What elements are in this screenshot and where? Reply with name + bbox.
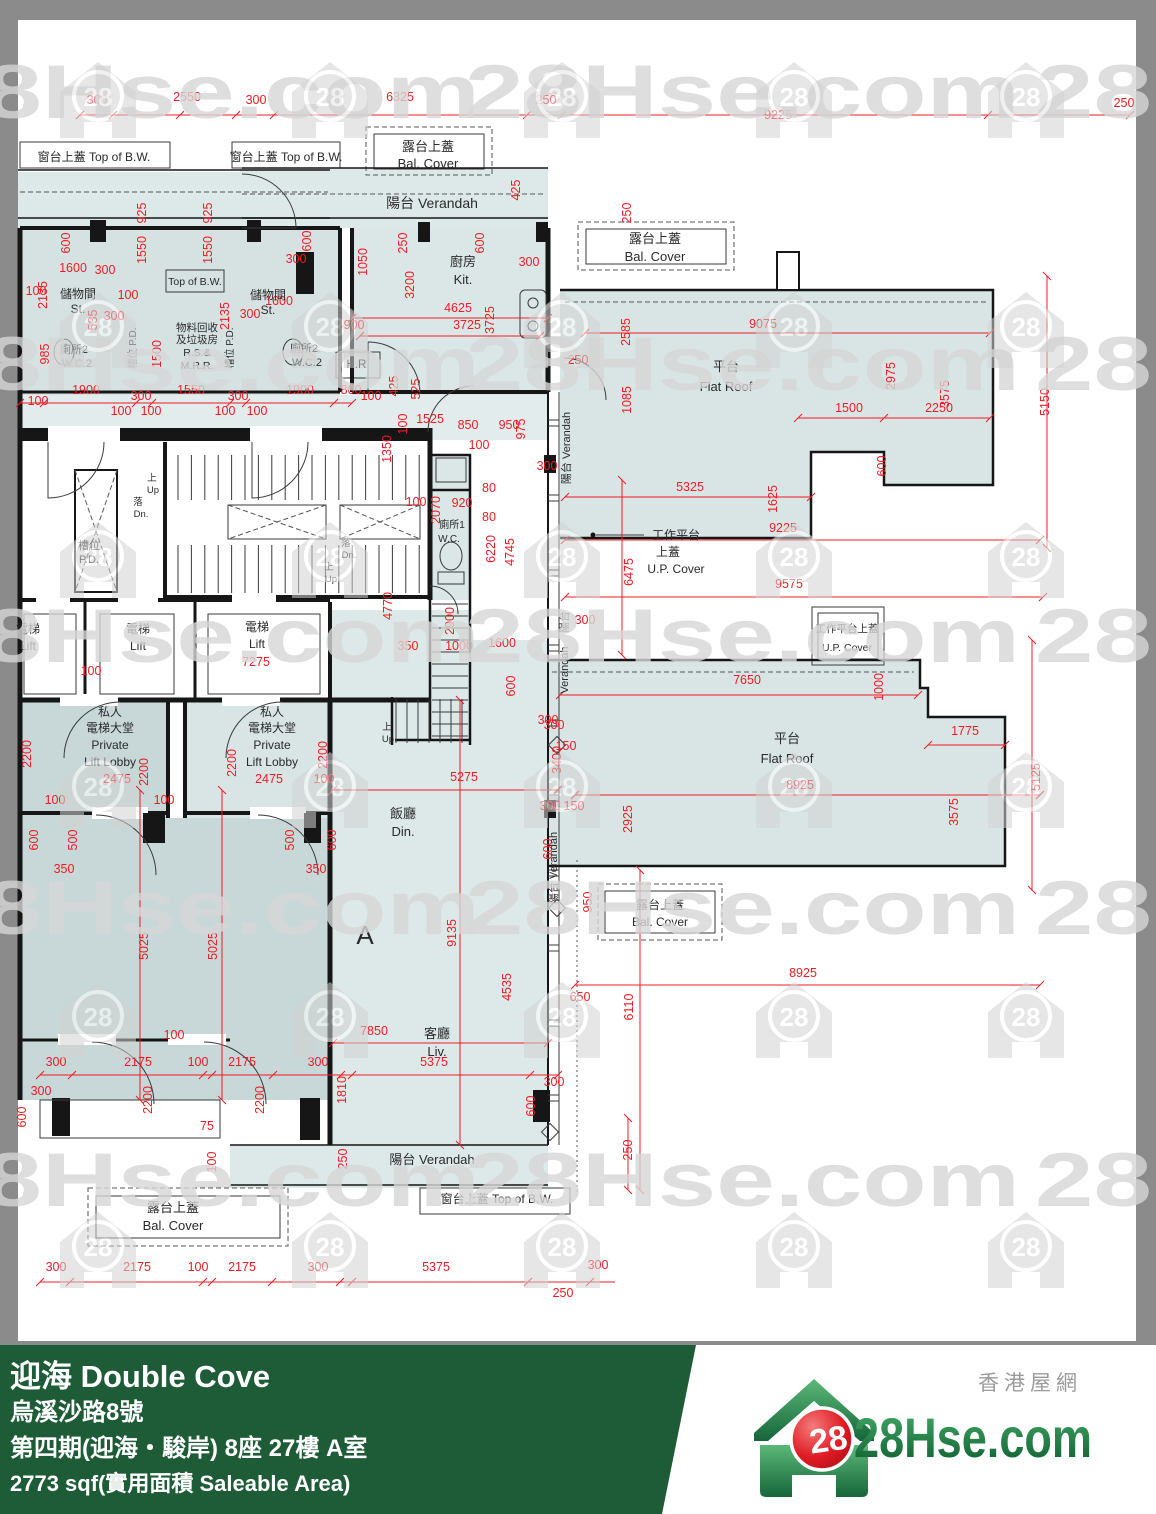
svg-text:2175: 2175 [228, 1055, 256, 1069]
logo-site-name-cn: 香港屋網 [978, 1372, 1082, 1395]
svg-text:28Hse.com: 28Hse.com [465, 594, 1020, 679]
svg-text:600: 600 [59, 233, 73, 254]
svg-text:100: 100 [406, 495, 427, 509]
svg-text:500: 500 [66, 830, 80, 851]
svg-text:平台: 平台 [774, 731, 800, 746]
svg-text:1625: 1625 [766, 485, 780, 513]
svg-text:2475: 2475 [255, 772, 283, 786]
svg-text:28: 28 [316, 1232, 345, 1262]
svg-text:300: 300 [544, 1075, 565, 1089]
svg-text:1350: 1350 [380, 435, 394, 463]
svg-text:28: 28 [316, 82, 345, 112]
svg-text:300: 300 [31, 1084, 52, 1098]
estate-title: 迎海 Double Cove [10, 1351, 270, 1396]
svg-text:上: 上 [147, 473, 157, 484]
svg-text:975: 975 [514, 419, 528, 440]
svg-text:2200: 2200 [141, 1086, 155, 1114]
svg-text:28Hse.com: 28Hse.com [0, 1138, 480, 1223]
svg-text:600: 600 [300, 231, 314, 252]
svg-text:250: 250 [620, 203, 634, 224]
svg-text:2200: 2200 [253, 1086, 267, 1114]
svg-text:100: 100 [188, 1055, 209, 1069]
svg-text:28: 28 [84, 772, 113, 802]
svg-text:28: 28 [84, 1002, 113, 1032]
svg-text:250: 250 [553, 1286, 574, 1300]
logo-site-name: 28Hse.com [854, 1406, 1092, 1469]
svg-text:2200: 2200 [20, 740, 34, 768]
svg-text:4535: 4535 [500, 973, 514, 1001]
svg-text:100: 100 [469, 438, 490, 452]
svg-text:600: 600 [875, 456, 889, 477]
svg-text:80: 80 [482, 510, 496, 524]
svg-text:100: 100 [118, 288, 139, 302]
svg-text:425: 425 [509, 180, 523, 201]
svg-text:28: 28 [548, 1232, 577, 1262]
svg-text:飯廳: 飯廳 [390, 806, 416, 821]
svg-text:100: 100 [164, 1028, 185, 1042]
svg-text:3575: 3575 [947, 798, 961, 826]
svg-text:Bal. Cover: Bal. Cover [625, 249, 686, 264]
logo-badge-number: 28 [807, 1419, 850, 1462]
svg-text:28: 28 [1012, 312, 1041, 342]
svg-text:2200: 2200 [137, 758, 151, 786]
svg-text:300: 300 [544, 718, 565, 732]
svg-text:電梯大堂: 電梯大堂 [86, 721, 134, 735]
svg-text:Up: Up [147, 485, 159, 496]
svg-text:5275: 5275 [450, 770, 478, 784]
svg-text:300: 300 [95, 263, 116, 277]
svg-text:5325: 5325 [676, 480, 704, 494]
svg-text:28Hse.com: 28Hse.com [1035, 1138, 1156, 1223]
svg-text:28: 28 [548, 82, 577, 112]
svg-text:28Hse.com: 28Hse.com [0, 594, 480, 679]
svg-text:28: 28 [780, 1232, 809, 1262]
svg-text:28: 28 [780, 82, 809, 112]
svg-text:工作平台: 工作平台 [652, 527, 700, 542]
svg-text:窗台上蓋 Top of B.W.: 窗台上蓋 Top of B.W. [230, 149, 343, 164]
svg-text:28Hse.com: 28Hse.com [1035, 866, 1156, 951]
svg-text:100: 100 [188, 1260, 209, 1274]
svg-text:U.P. Cover: U.P. Cover [647, 562, 704, 576]
svg-text:客廳: 客廳 [424, 1026, 450, 1041]
estate-address: 烏溪沙路8號 [10, 1392, 143, 1427]
svg-text:1775: 1775 [951, 724, 979, 738]
svg-text:600: 600 [473, 233, 487, 254]
floor-plan-image: 3002550300632525092252509259254251550155… [0, 0, 1156, 1345]
svg-text:6110: 6110 [622, 994, 636, 1021]
svg-text:5375: 5375 [422, 1260, 450, 1274]
svg-text:28: 28 [1012, 542, 1041, 572]
svg-text:300: 300 [537, 459, 558, 473]
svg-text:1525: 1525 [416, 412, 444, 426]
svg-text:28: 28 [316, 542, 345, 572]
svg-text:上: 上 [382, 722, 392, 733]
svg-text:28: 28 [548, 312, 577, 342]
svg-text:100: 100 [26, 284, 47, 298]
svg-text:28: 28 [1012, 1232, 1041, 1262]
svg-text:28Hse.com: 28Hse.com [465, 1138, 1020, 1223]
svg-text:28: 28 [548, 772, 577, 802]
svg-text:4745: 4745 [503, 538, 517, 566]
svg-text:100: 100 [396, 414, 410, 435]
svg-text:電梯大堂: 電梯大堂 [248, 721, 296, 735]
svg-text:1550: 1550 [135, 236, 149, 264]
svg-text:露台上蓋: 露台上蓋 [402, 139, 454, 154]
svg-text:28: 28 [84, 312, 113, 342]
svg-text:Din.: Din. [391, 824, 414, 839]
svg-text:28: 28 [1012, 772, 1041, 802]
svg-text:儲物間: 儲物間 [250, 288, 286, 302]
svg-text:925: 925 [201, 203, 215, 224]
svg-text:300: 300 [519, 255, 540, 269]
svg-text:Liv.: Liv. [427, 1044, 446, 1059]
svg-text:28: 28 [548, 1002, 577, 1032]
svg-text:28: 28 [84, 542, 113, 572]
svg-text:28: 28 [1012, 82, 1041, 112]
svg-text:600: 600 [524, 1096, 538, 1117]
svg-text:露台上蓋: 露台上蓋 [629, 231, 681, 246]
svg-text:925: 925 [135, 203, 149, 224]
svg-text:28: 28 [548, 542, 577, 572]
svg-text:落: 落 [133, 496, 143, 508]
svg-text:St.: St. [261, 303, 276, 317]
svg-text:28Hse.com: 28Hse.com [0, 866, 480, 951]
svg-text:6475: 6475 [622, 558, 636, 586]
svg-text:Top of B.W.: Top of B.W. [168, 276, 222, 288]
svg-text:250: 250 [396, 233, 410, 254]
svg-text:28: 28 [84, 1232, 113, 1262]
svg-text:600: 600 [325, 830, 339, 851]
svg-text:28: 28 [780, 772, 809, 802]
svg-text:28: 28 [780, 542, 809, 572]
svg-text:28: 28 [316, 1002, 345, 1032]
svg-text:100: 100 [154, 793, 175, 807]
svg-text:陽台 Verandah: 陽台 Verandah [386, 195, 478, 211]
svg-text:Bal. Cover: Bal. Cover [398, 156, 459, 171]
svg-text:Dn.: Dn. [134, 509, 149, 520]
site-logo: 28 28Hse.com 香港屋網 [736, 1345, 1156, 1514]
svg-text:600: 600 [27, 830, 41, 851]
svg-text:28: 28 [780, 1002, 809, 1032]
svg-text:1600: 1600 [59, 261, 87, 275]
svg-text:500: 500 [283, 830, 297, 851]
unit-info: 第四期(迎海・駿岸) 8座 27樓 A室 [10, 1428, 367, 1463]
svg-text:Up: Up [382, 734, 394, 745]
svg-text:廁所1: 廁所1 [439, 518, 465, 531]
svg-text:2175: 2175 [228, 1260, 256, 1274]
svg-text:28: 28 [316, 312, 345, 342]
svg-text:1550: 1550 [201, 236, 215, 264]
svg-text:8925: 8925 [789, 966, 817, 980]
svg-text:Private: Private [91, 738, 129, 752]
svg-text:28Hse.com: 28Hse.com [1035, 594, 1156, 679]
svg-text:80: 80 [482, 481, 496, 495]
svg-text:1810: 1810 [335, 1076, 349, 1104]
svg-text:窗台上蓋 Top of B.W.: 窗台上蓋 Top of B.W. [38, 149, 151, 164]
svg-text:陽台 Verandah: 陽台 Verandah [559, 412, 573, 484]
svg-text:600: 600 [15, 1107, 29, 1128]
svg-text:4625: 4625 [444, 301, 472, 315]
svg-text:W.C.: W.C. [438, 534, 460, 545]
svg-text:1050: 1050 [356, 248, 370, 276]
page: { "watermark": { "text": "28Hse.com", "b… [0, 0, 1156, 1514]
svg-text:28: 28 [780, 312, 809, 342]
svg-text:私人: 私人 [260, 705, 284, 719]
svg-text:2925: 2925 [621, 805, 635, 833]
svg-text:28: 28 [316, 772, 345, 802]
svg-text:6220: 6220 [484, 535, 498, 563]
footer: 迎海 Double Cove 烏溪沙路8號 第四期(迎海・駿岸) 8座 27樓 … [0, 1345, 1156, 1514]
svg-text:28Hse.com: 28Hse.com [465, 866, 1020, 951]
svg-text:920: 920 [452, 496, 473, 510]
svg-text:850: 850 [458, 418, 479, 432]
svg-text:28: 28 [1012, 1002, 1041, 1032]
svg-text:私人: 私人 [98, 705, 122, 719]
svg-text:Kit.: Kit. [454, 272, 473, 287]
svg-text:3200: 3200 [403, 271, 417, 299]
svg-text:廚房: 廚房 [450, 254, 476, 269]
svg-text:300: 300 [286, 252, 307, 266]
svg-text:300: 300 [240, 307, 261, 321]
svg-text:Private: Private [253, 738, 291, 752]
svg-text:Lift Lobby: Lift Lobby [246, 755, 298, 769]
svg-text:上蓋: 上蓋 [656, 545, 680, 559]
svg-text:75: 75 [200, 1119, 214, 1133]
svg-text:28: 28 [84, 82, 113, 112]
svg-text:2200: 2200 [225, 749, 239, 777]
saleable-area: 2773 sqf(實用面積 Saleable Area) [10, 1466, 350, 1498]
